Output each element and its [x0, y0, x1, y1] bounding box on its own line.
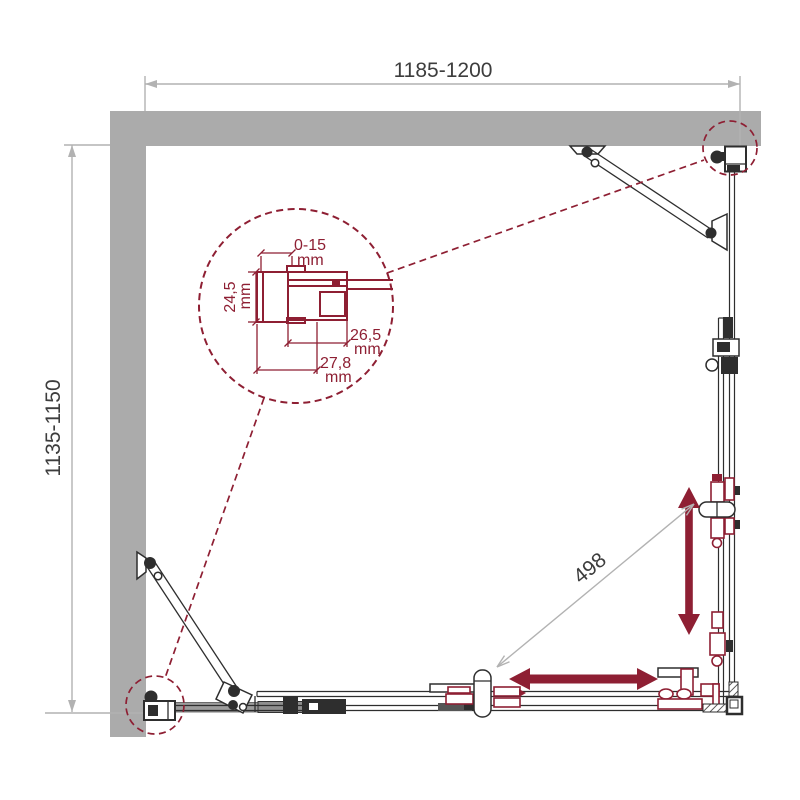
detail-depth-unit: mm: [325, 369, 352, 386]
shower-enclosure-technical-drawing: 1185-1200 1135-1150: [0, 0, 800, 800]
handle-knob-icon: [474, 670, 491, 717]
dimension-width-label: 1185-1200: [394, 59, 493, 82]
detail-gap-unit: mm: [297, 252, 324, 269]
door-handle-right: [699, 502, 735, 517]
top-wall: [110, 111, 761, 146]
rail-clamp-cluster: [283, 697, 346, 714]
detail-height-unit: mm: [237, 283, 254, 310]
left-wall: [110, 111, 146, 737]
drawing-canvas: 1185-1200 1135-1150: [0, 0, 800, 800]
detail-pocket-unit: mm: [354, 341, 381, 358]
dimension-depth-label: 1135-1150: [42, 379, 65, 476]
adjustment-knob-icon: [711, 151, 724, 164]
